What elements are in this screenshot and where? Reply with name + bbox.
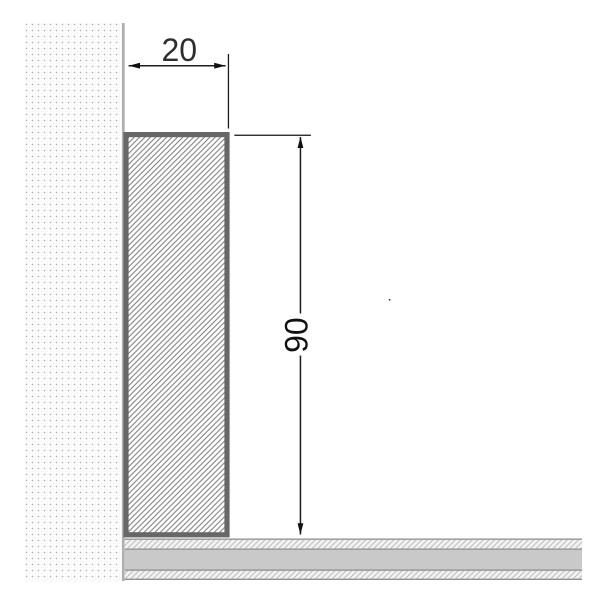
svg-text:90: 90 [279, 317, 315, 353]
svg-text:20: 20 [162, 32, 198, 68]
